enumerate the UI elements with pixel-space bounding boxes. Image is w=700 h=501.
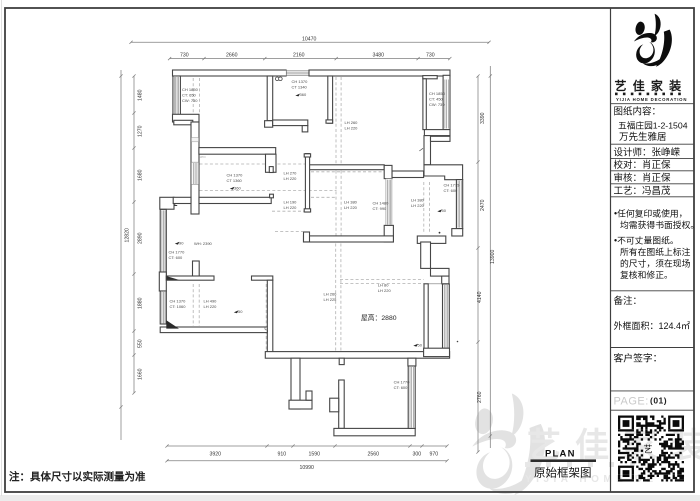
svg-text:LH 380: LH 380 [344,200,358,205]
svg-text:(01): (01) [650,396,667,406]
svg-text:50: 50 [238,309,243,314]
svg-text:万先生雅居: 万先生雅居 [619,131,667,143]
svg-text:cPO: cPO [200,155,207,159]
svg-text:2660: 2660 [226,52,238,58]
svg-text:•任何复印或使用，: •任何复印或使用， [614,208,687,219]
svg-text:PAGE:: PAGE: [614,396,649,408]
svg-text:CT: 650: CT: 650 [182,93,197,98]
svg-text:360: 360 [300,92,307,97]
svg-text:WH: 2390: WH: 2390 [194,241,213,246]
svg-text:LH 80: LH 80 [378,283,389,288]
svg-text:1270: 1270 [138,125,144,137]
svg-text:LH 380: LH 380 [411,198,425,203]
svg-text:CH 1480: CH 1480 [373,201,390,206]
svg-text:4140: 4140 [477,291,483,303]
svg-text:CH 1370: CH 1370 [292,79,309,84]
svg-text:3390: 3390 [480,112,486,124]
svg-text:艺佳家装: 艺佳家装 [615,78,688,93]
svg-text:•不可丈量图纸。: •不可丈量图纸。 [614,235,679,246]
svg-text:910: 910 [278,451,287,457]
svg-text:CH 1775: CH 1775 [444,183,461,188]
svg-text:LH 220: LH 220 [378,288,392,293]
svg-text:2890: 2890 [138,232,144,244]
svg-text:LH 260: LH 260 [324,292,338,297]
svg-text:CW: 730: CW: 730 [429,102,445,107]
svg-text:审核：肖正保: 审核：肖正保 [614,172,672,184]
svg-text:均需获得书面授权。: 均需获得书面授权。 [620,219,699,230]
svg-text:CH 1850: CH 1850 [182,87,199,92]
svg-text:1880: 1880 [138,297,144,309]
svg-text:CH 1370: CH 1370 [170,299,187,304]
svg-text:所有在图纸上标注: 所有在图纸上标注 [620,246,691,257]
svg-text:LH 220: LH 220 [284,176,298,181]
svg-text:的尺寸，须在现场: 的尺寸，须在现场 [620,258,691,269]
svg-text:CT: 990: CT: 990 [373,206,388,211]
svg-text:LH 220: LH 220 [204,304,218,309]
svg-text:1680: 1680 [138,169,144,181]
svg-text:2160: 2160 [293,52,305,58]
svg-text:外框面积：124.4㎡: 外框面积：124.4㎡ [614,320,691,331]
svg-text:CH 1370: CH 1370 [227,173,244,178]
svg-text:工艺：冯昌茂: 工艺：冯昌茂 [614,185,672,197]
svg-text:LH 220: LH 220 [411,203,425,208]
svg-text:CT: 1060: CT: 1060 [170,304,187,309]
svg-text:CT: 450: CT: 450 [429,97,444,102]
svg-text:客户签字：: 客户签字： [614,352,663,365]
svg-text:730: 730 [426,52,435,58]
svg-text:1480: 1480 [138,89,144,101]
svg-text:LH 220: LH 220 [344,205,358,210]
svg-text:CT: 600: CT: 600 [394,385,409,390]
svg-text:CT 1360: CT 1360 [227,178,243,183]
svg-text:2560: 2560 [368,451,380,457]
svg-text:1660: 1660 [138,368,144,380]
svg-text:五福庄园1-2-1504: 五福庄园1-2-1504 [618,120,688,131]
svg-text:CH 1770: CH 1770 [394,380,411,385]
svg-text:3920: 3920 [210,451,222,457]
svg-text:YIJIA HOME DECORATION: YIJIA HOME DECORATION [616,97,687,102]
svg-text:CT: 600: CT: 600 [444,188,459,193]
svg-text:730: 730 [180,52,189,58]
svg-text:LH 225: LH 225 [324,297,338,302]
svg-text:备注：: 备注： [614,295,643,307]
svg-text:2470: 2470 [480,199,486,211]
svg-text:LH 220: LH 220 [284,205,298,210]
svg-text:1590: 1590 [309,451,321,457]
svg-text:LH 220: LH 220 [345,126,359,131]
svg-text:艺: 艺 [644,445,653,455]
svg-text:LH 260: LH 260 [345,120,359,125]
svg-text:CH 1770: CH 1770 [169,250,186,255]
svg-text:PLAN: PLAN [545,449,576,460]
svg-text:10990: 10990 [300,465,315,471]
svg-text:CT 1340: CT 1340 [292,85,308,90]
svg-text:90: 90 [179,240,184,245]
svg-text:10470: 10470 [302,36,317,42]
svg-text:LH 190: LH 190 [284,200,298,205]
svg-text:3480: 3480 [373,52,385,58]
svg-text:图纸内容：: 图纸内容： [614,106,662,118]
svg-text:12820: 12820 [125,228,131,243]
svg-text:360: 360 [234,185,241,190]
svg-text:300: 300 [413,451,422,457]
svg-text:2760: 2760 [477,391,483,403]
svg-text:13900: 13900 [490,249,496,264]
svg-text:CH 1850: CH 1850 [429,91,446,96]
svg-text:970: 970 [430,451,439,457]
svg-text:50: 50 [442,208,447,213]
svg-text:CW: 730: CW: 730 [182,98,198,103]
svg-text:屋高：2880: 屋高：2880 [361,313,397,322]
svg-text:校对：肖正保: 校对：肖正保 [614,159,672,171]
svg-text:LH 270: LH 270 [284,171,298,176]
svg-text:LH 490: LH 490 [204,299,218,304]
svg-text:复核和修正。: 复核和修正。 [620,269,673,280]
svg-text:设计师：张峥嵘: 设计师：张峥嵘 [614,147,681,159]
svg-text:原始框架图: 原始框架图 [534,466,592,480]
svg-text:550: 550 [138,339,144,348]
svg-text:CT: 600: CT: 600 [169,255,184,260]
svg-text:注：具体尺寸以实际测量为准: 注：具体尺寸以实际测量为准 [9,470,146,483]
svg-text:50: 50 [418,342,423,347]
